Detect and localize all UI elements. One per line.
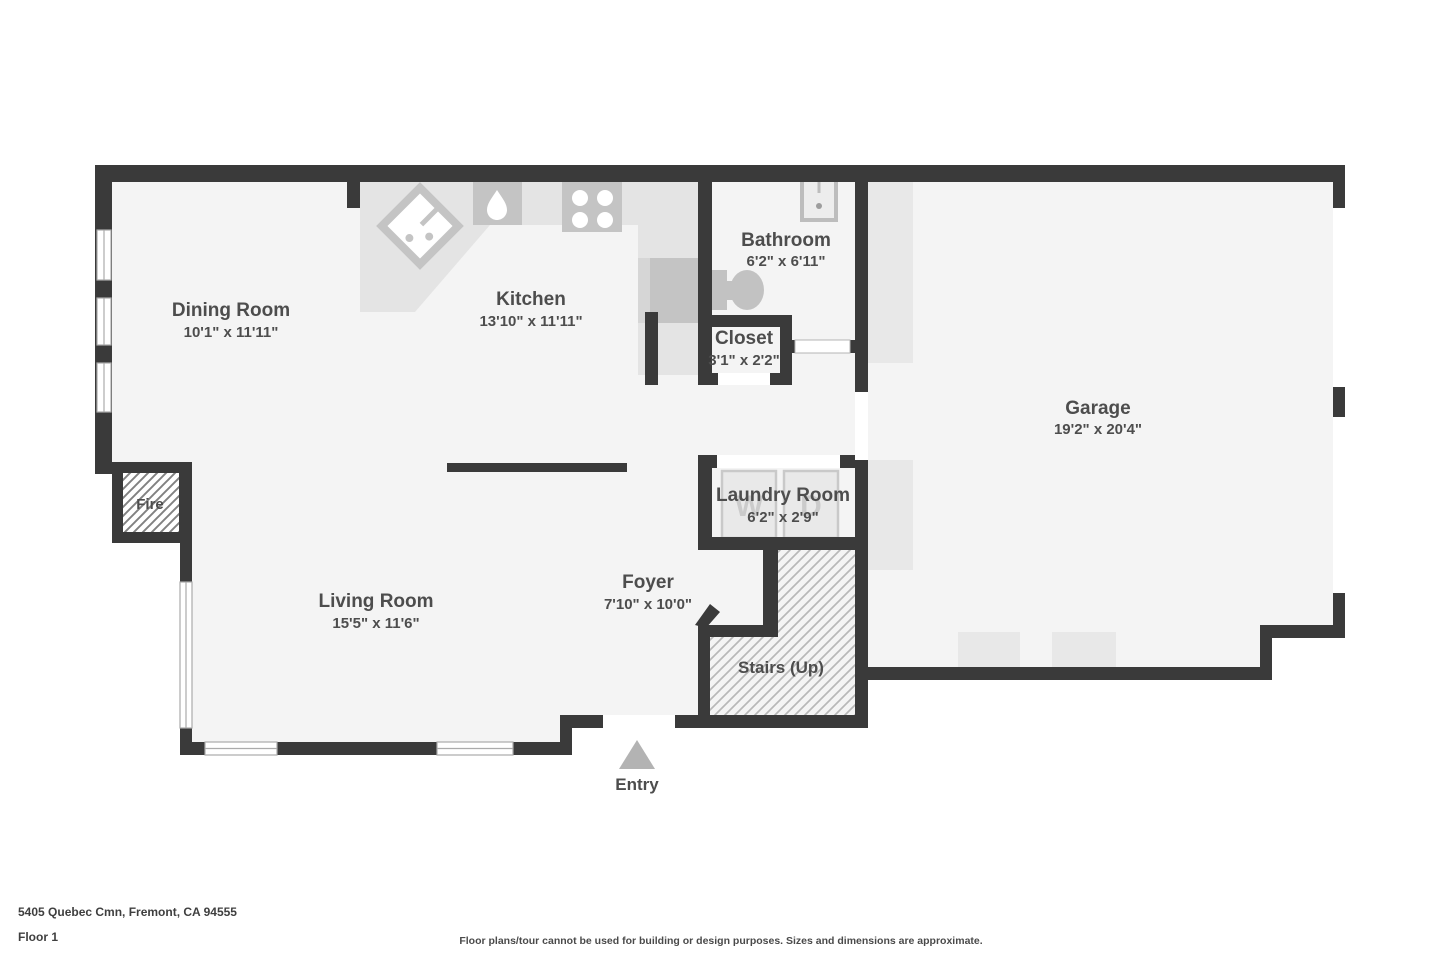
floor-living-strip xyxy=(192,715,572,742)
dishwasher-icon xyxy=(473,182,522,225)
dims-living-room: 15'5" x 11'6" xyxy=(332,615,419,632)
garage-block-bottom-left xyxy=(958,632,1020,667)
label-stairs: Stairs (Up) xyxy=(738,658,824,677)
wall-stairs-vertical-lower xyxy=(698,625,710,715)
footer-floor-label: Floor 1 xyxy=(18,930,58,944)
entry-arrow-icon xyxy=(619,740,655,769)
garage-door-opening-lower xyxy=(1333,417,1345,593)
footer-address: 5405 Quebec Cmn, Fremont, CA 94555 xyxy=(18,905,237,919)
stove-icon xyxy=(562,182,622,232)
dims-kitchen: 13'10" x 11'11" xyxy=(479,313,582,330)
dims-closet: 3'1" x 2'2" xyxy=(708,352,779,369)
window-living-left xyxy=(180,582,192,728)
entry-door-opening xyxy=(603,715,675,728)
wall-stairs-vertical-upper xyxy=(763,548,778,637)
dims-bathroom: 6'2" x 6'11" xyxy=(747,253,826,270)
toilet-icon xyxy=(709,270,764,310)
window-living-bottom-1 xyxy=(205,742,277,755)
garage-block-bottom-right xyxy=(1052,632,1116,667)
footer-disclaimer: Floor plans/tour cannot be used for buil… xyxy=(459,935,982,947)
label-laundry-room: Laundry Room xyxy=(716,485,850,506)
window-dining-2 xyxy=(97,298,111,345)
bathroom-sink-icon xyxy=(802,179,836,220)
wall-closet-top xyxy=(698,315,792,327)
wall-kitchen-stub xyxy=(645,312,658,385)
wall-laundry-bottom xyxy=(698,537,868,550)
floor-plan-canvas: W D xyxy=(0,0,1440,960)
window-living-bottom-2 xyxy=(437,742,513,755)
wall-half-kitchen-living xyxy=(447,463,627,472)
label-living-room: Living Room xyxy=(318,591,433,612)
dims-foyer: 7'10" x 10'0" xyxy=(604,596,692,613)
dims-garage: 19'2" x 20'4" xyxy=(1054,421,1142,438)
laundry-door-opening xyxy=(717,455,840,468)
label-kitchen: Kitchen xyxy=(496,289,566,310)
label-foyer: Foyer xyxy=(622,572,674,593)
garage-block-mid xyxy=(868,460,913,570)
dims-laundry-room: 6'2" x 2'9" xyxy=(747,509,818,526)
label-entry: Entry xyxy=(615,775,659,794)
footer: 5405 Quebec Cmn, Fremont, CA 94555 Floor… xyxy=(18,905,983,947)
label-closet: Closet xyxy=(715,328,774,349)
wall-top-exterior xyxy=(95,165,1345,182)
floor-dining-strip xyxy=(112,182,192,462)
closet-door-opening xyxy=(718,373,770,385)
dims-dining-room: 10'1" x 11'11" xyxy=(184,324,279,341)
label-fireplace: Fire xyxy=(136,496,164,513)
garage-door-opening-upper xyxy=(1333,208,1345,387)
garage-hall-door-opening xyxy=(855,392,868,460)
window-dining-3 xyxy=(97,363,111,412)
wall-garage-notch-h xyxy=(1260,625,1345,638)
label-bathroom: Bathroom xyxy=(741,230,831,251)
label-dining-room: Dining Room xyxy=(172,300,290,321)
wall-laundry-left xyxy=(698,455,712,550)
label-garage: Garage xyxy=(1065,398,1130,419)
floor-plan-page: W D xyxy=(0,0,1440,960)
bathroom-door-opening xyxy=(795,340,850,353)
garage-block-top xyxy=(868,182,913,363)
window-dining-1 xyxy=(97,230,111,280)
wall-stub-dining-kitchen xyxy=(347,182,360,208)
wall-garage-bottom xyxy=(855,667,1272,680)
